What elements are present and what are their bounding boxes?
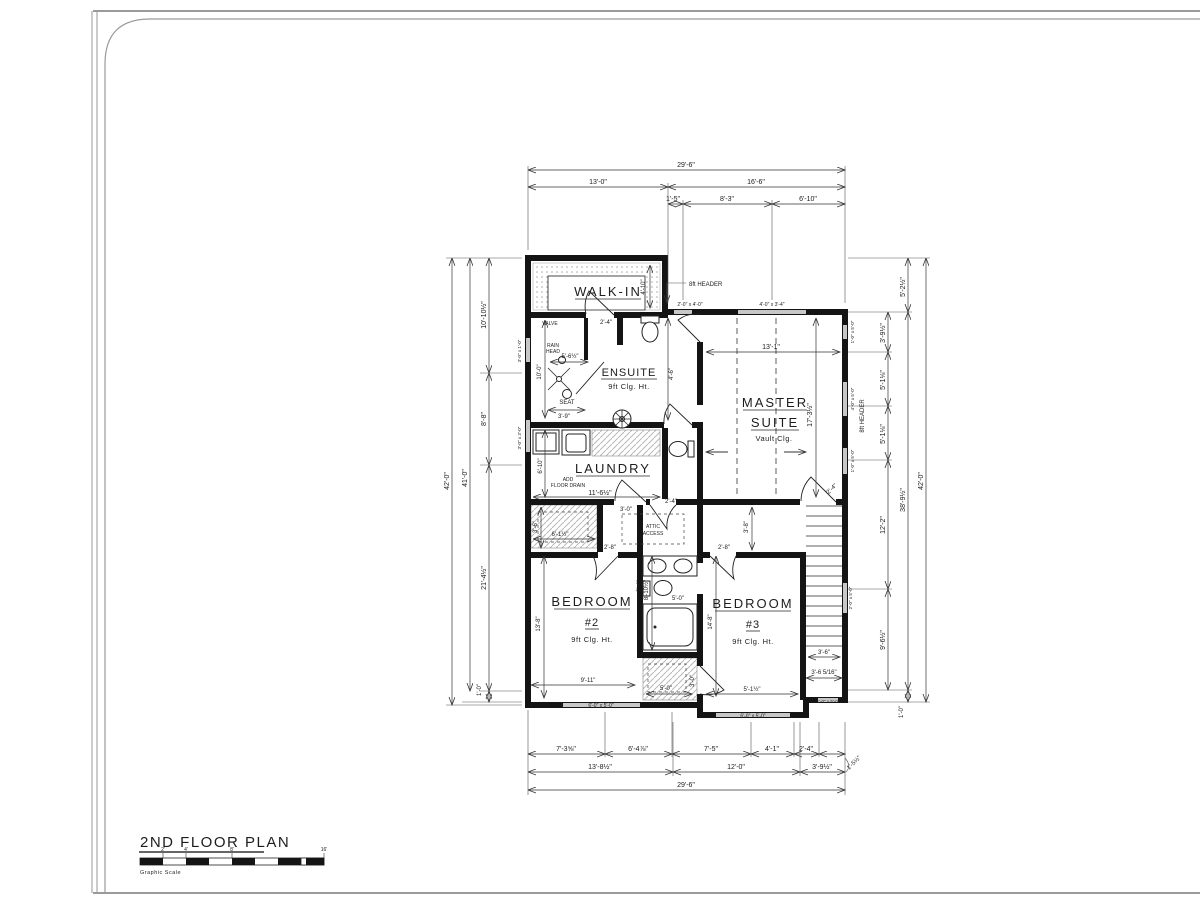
header-top-note: 8ft HEADER <box>689 282 723 288</box>
window-left-a <box>526 338 530 362</box>
right-header-note: 8ft HEADER <box>860 399 866 433</box>
dim-right-s2: 3'-9½" <box>879 323 887 343</box>
bath-height-dim: 8'-10½" <box>643 580 650 600</box>
attic-label-2: ACCESS <box>643 531 664 537</box>
title-block: 2ND FLOOR PLAN 2' 4' 8' 16' Graphic Scal… <box>139 834 327 876</box>
window-right-c <box>843 448 847 474</box>
dim-right-s3: 5'-1⅛" <box>880 370 887 390</box>
bed3-door-dim: 2'-8" <box>718 545 730 551</box>
dim-left-s2: 8'-8" <box>481 412 488 426</box>
dim-left-s4: 1'-0" <box>477 684 483 696</box>
doors <box>576 291 836 695</box>
bed3-height-dim: 14'-8" <box>708 614 714 629</box>
rainhead-note-2: HEAD <box>546 349 560 355</box>
bottom-closet-door-dim: 3'-0" <box>690 675 696 687</box>
laundry-note-2: FLOOR DRAIN <box>551 483 586 489</box>
laundry-height-dim: 6'-10" <box>538 458 544 473</box>
bed3-ceiling: 9ft Clg. Ht. <box>732 637 773 646</box>
dim-top-s3: 6'-10" <box>799 196 817 203</box>
dim-right-s4: 5'-1⅛" <box>880 424 887 444</box>
dim-top-s1: 1'-5" <box>666 196 680 203</box>
bed2-door <box>593 556 618 580</box>
seat-note: SEAT <box>559 400 575 406</box>
walkin-depth-dim: 4'-10" <box>641 279 647 294</box>
toilet2 <box>669 442 687 457</box>
window-right-b <box>843 382 847 416</box>
bath-toilet <box>654 581 672 596</box>
master-door-dim: 2'-4" <box>826 483 839 496</box>
dim-bot-m3: 3'-9½" <box>812 763 832 771</box>
window-top-a-label: 2'-0" x 4'-0" <box>677 302 702 308</box>
scale-tick-4: 4' <box>184 847 188 853</box>
window-right-d <box>843 583 847 613</box>
window-right-b-label: 4'-0" x 5'-0" <box>850 387 855 410</box>
window-right-c-label: 1'-0" x 5'-0" <box>850 449 855 472</box>
wc-width-dim: 4'-6" <box>669 368 675 380</box>
hall-width-dim: 3'-8" <box>744 521 750 533</box>
laundry-counter <box>592 430 660 456</box>
shower-seat <box>563 390 572 399</box>
ensuite-ceiling: 9ft Clg. Ht. <box>608 382 649 391</box>
bed2-height-dim: 13'-8" <box>536 616 542 631</box>
master-height-dim: 17'-3½" <box>806 403 814 427</box>
dim-top-left: 13'-0" <box>589 179 607 186</box>
dim-left-s1: 10'-10½" <box>480 301 488 329</box>
window-left-b-label: 3'-0" x 3'-0" <box>517 426 522 449</box>
dim-bot-s1: 7'-3⅝" <box>556 746 576 753</box>
dim-top-overall: 29'-6" <box>677 162 695 169</box>
laundry-door-dim: 3'-0" <box>620 507 632 513</box>
window-right-d-label: 2'-0" x 5'-0" <box>848 586 853 609</box>
bed3-width-dim: 5'-1½" <box>744 686 761 693</box>
bath-door-dim: 2'-4" <box>665 499 677 505</box>
laundry-door <box>615 480 646 502</box>
seat-dim: 3'-9" <box>558 414 570 420</box>
shower-door <box>576 362 604 394</box>
bath-width-dim: 5'-0" <box>672 596 684 602</box>
graphic-scale-caption: Graphic Scale <box>140 870 181 876</box>
scale-tick-8: 8' <box>230 847 234 853</box>
window-top-a <box>674 310 692 314</box>
wc-door <box>678 314 700 342</box>
window-right-a <box>843 325 847 339</box>
dim-bot-s5: 2'-4" <box>799 746 813 753</box>
master-label-1: MASTER <box>742 395 808 410</box>
toilet <box>642 322 658 342</box>
bed2-label: BEDROOM <box>551 594 632 609</box>
see-detail-note: SEE DETAIL <box>581 424 607 429</box>
walkin-door-dim: 2'-4" <box>600 320 612 326</box>
ensuite-sink <box>613 410 631 428</box>
stair-width-dim: 3'-6" <box>818 650 830 656</box>
toilet2-tank <box>688 441 694 457</box>
bed3-label: BEDROOM <box>712 596 793 611</box>
window-bottom-c-label: 1'-0" x 5'-0" <box>817 699 840 704</box>
dimension-lines <box>446 166 930 795</box>
drawing-sheet: WALK-IN ENSUITE 9ft Clg. Ht. MASTER SUIT… <box>0 0 1200 900</box>
stair-width2-dim: 3'-6 5/16" <box>811 670 836 676</box>
dim-right-s7: 1'-0" <box>899 706 905 718</box>
master-label-2: SUITE <box>751 415 799 430</box>
dim-bot-s4: 4'-1" <box>765 746 779 753</box>
window-bottom-a-label: 6'-0" x 5'-0" <box>588 703 613 709</box>
dim-top-right: 16'-6" <box>747 179 765 186</box>
window-top-b-label: 4'-0" x 3'-4" <box>759 302 784 308</box>
dim-bot-overall: 29'-6" <box>677 782 695 789</box>
bottom-closet-door <box>700 666 724 695</box>
bottom-closet-width-dim: 5'-0" <box>660 686 672 692</box>
walkin-label: WALK-IN <box>574 284 642 299</box>
scale-tick-16: 16' <box>321 847 328 853</box>
bed2-ceiling: 9ft Clg. Ht. <box>571 635 612 644</box>
dim-bot-s3: 7'-5" <box>704 746 718 753</box>
dim-bot-s2: 6'-4⅞" <box>628 746 648 753</box>
window-right-a-label: 1'-0" x 5'-0" <box>850 320 855 343</box>
bed3-number: #3 <box>746 619 760 631</box>
window-left-b <box>526 420 530 452</box>
valve-note: VALVE <box>542 321 558 327</box>
attic-label-1: ATTIC <box>646 524 660 530</box>
laundry-width-dim: 11'-6½" <box>588 489 612 497</box>
dim-right-s5: 12'-2" <box>880 516 887 534</box>
ensuite-label: ENSUITE <box>602 367 657 379</box>
shower-width-dim: 5'-6½" <box>562 353 579 360</box>
bed2-door-dim: 2'-8" <box>604 545 616 551</box>
window-left-a-label: 3'-0" x 1'-0" <box>517 339 522 362</box>
bed2-width-dim: 9'-11" <box>581 678 596 684</box>
dim-top-s2: 8'-3" <box>720 196 734 203</box>
dim-left-inner: 41'-0" <box>462 469 469 487</box>
master-width-dim: 13'-1" <box>762 344 780 351</box>
vanity-depth-dim: 2'-4" <box>637 580 643 592</box>
dim-left-overall: 42'-0" <box>444 472 451 490</box>
hall-closet-depth-dim: 3'-6" <box>533 521 539 533</box>
ensuite-height-dim: 10'-0" <box>537 364 543 379</box>
shower-symbols <box>548 357 572 399</box>
dim-left-s3: 21'-4½" <box>480 566 488 590</box>
dim-bot-m1: 13'-8½" <box>588 763 612 771</box>
dim-right-overall: 42'-0" <box>918 472 925 490</box>
laundry-label: LAUNDRY <box>575 461 651 476</box>
master-ceiling: Vault Clg. <box>756 434 793 443</box>
hall-closet-width-dim: 6'-1½" <box>552 531 569 538</box>
window-top-b <box>738 310 806 314</box>
scale-tick-2: 2' <box>161 847 165 853</box>
dim-right-s6: 9'-6½" <box>879 630 887 650</box>
dim-right-s1: 5'-2½" <box>899 277 907 297</box>
window-bottom-b-label: 6'-0" x 5'-0" <box>740 714 765 720</box>
dim-right-sub: 38'-9½" <box>899 488 907 512</box>
bed2-number: #2 <box>585 617 599 629</box>
dim-bot-m2: 12'-0" <box>727 764 745 771</box>
bed3-door <box>710 556 736 579</box>
